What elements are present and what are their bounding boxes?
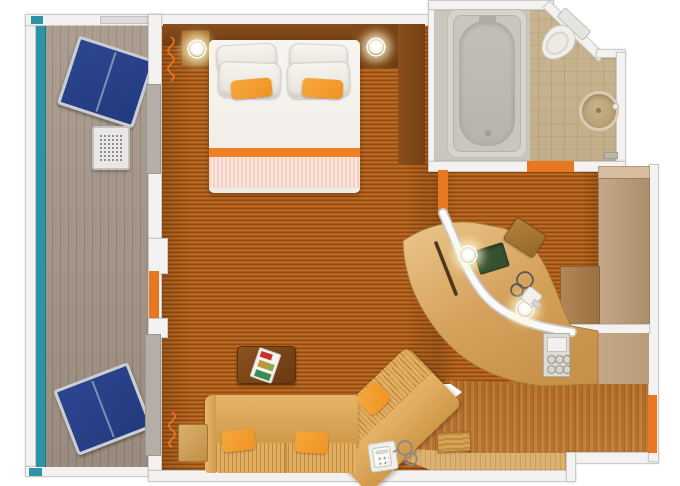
recessed-light-desk-upper — [458, 245, 478, 265]
desk-and-details-layer — [0, 0, 680, 486]
telephone-cord — [393, 441, 417, 465]
curtain-living — [169, 412, 175, 447]
curtain-bedroom — [168, 37, 174, 81]
minibar-glass-tray — [543, 333, 570, 377]
glass — [563, 365, 571, 374]
glass — [563, 355, 571, 364]
ice-bucket — [547, 337, 567, 352]
cabin-floorplan — [0, 0, 680, 486]
